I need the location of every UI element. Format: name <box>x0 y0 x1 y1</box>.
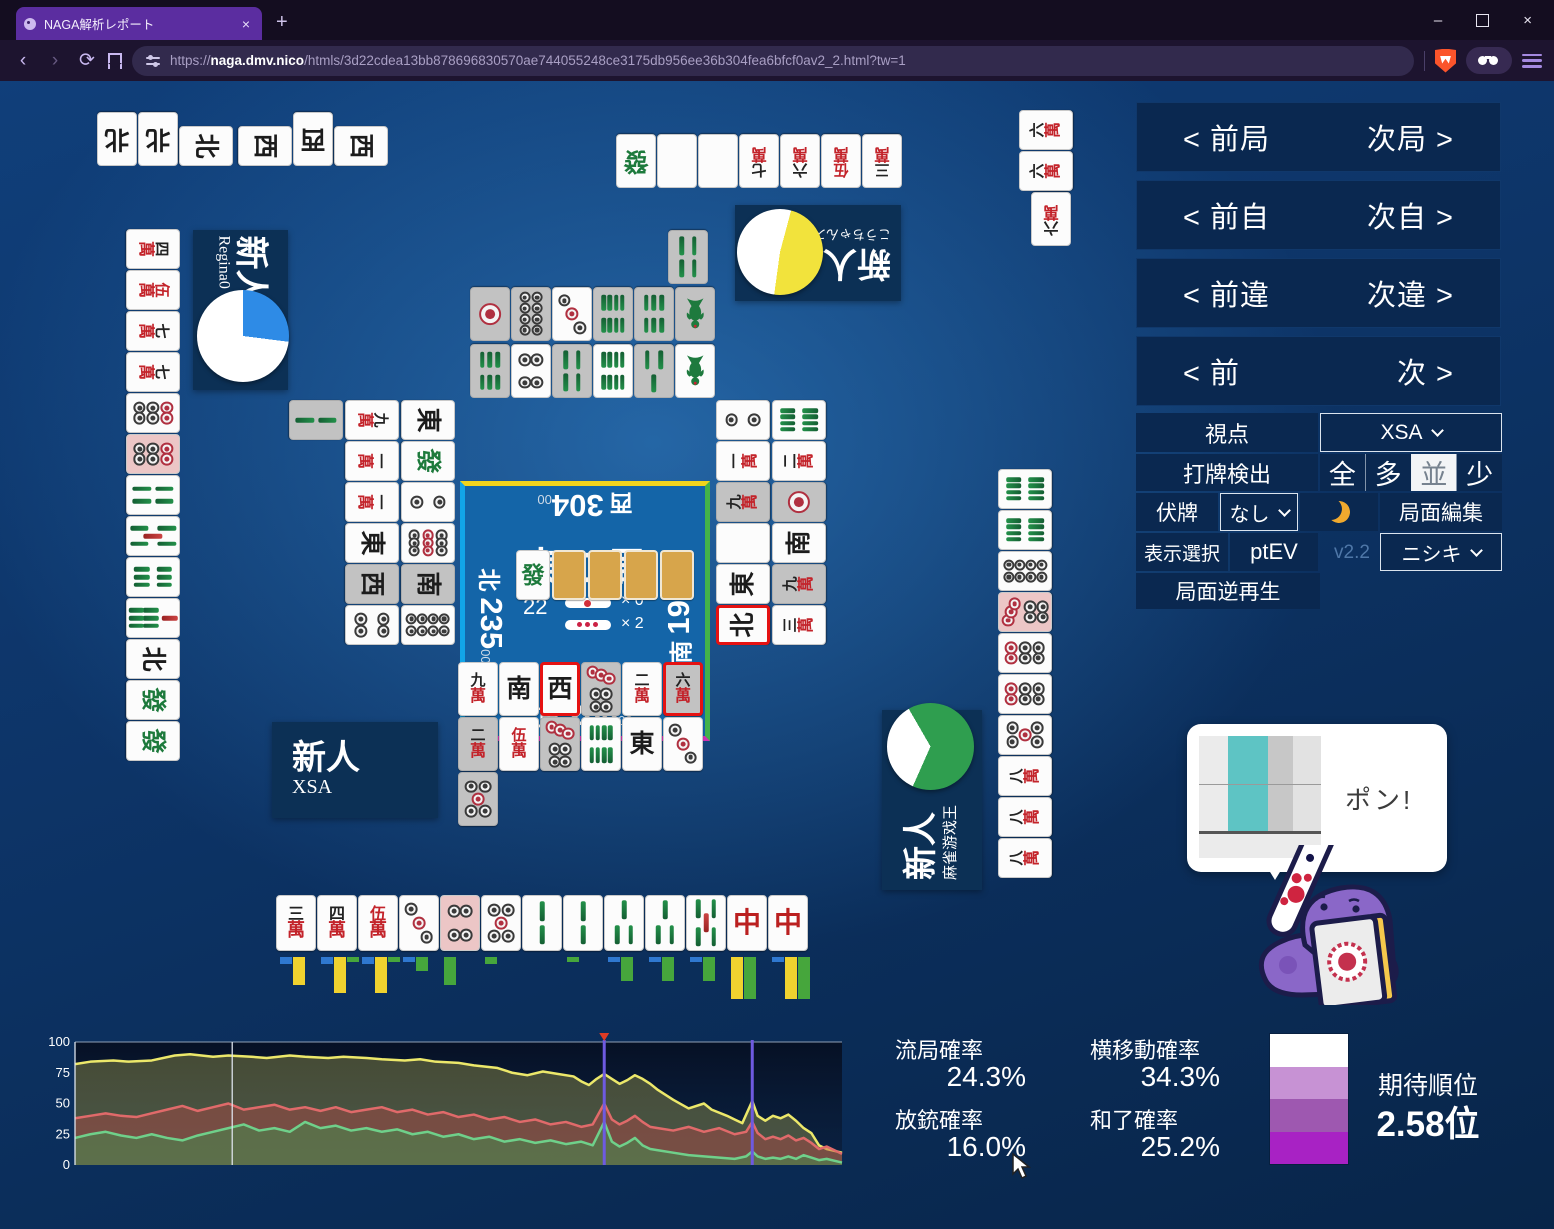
call-probability-panel <box>1199 736 1321 858</box>
dahai-bar <box>362 957 374 964</box>
maximize-button[interactable] <box>1476 14 1489 27</box>
expected-rank-value: 2.58位 <box>1348 1096 1508 1147</box>
stat-dealin-value: 16.0% <box>858 1131 1026 1163</box>
menu-icon[interactable] <box>1522 54 1542 68</box>
dahai-bar <box>280 957 292 964</box>
dahai-bar <box>731 957 743 999</box>
dahai-bar <box>388 957 400 962</box>
dahai-bar <box>772 957 784 962</box>
tab-close-icon[interactable]: × <box>238 16 254 32</box>
dahai-bar <box>416 957 428 971</box>
dahai-bar <box>785 957 797 999</box>
stat-pass-value: 34.3% <box>1052 1061 1220 1093</box>
dahai-bar <box>485 957 497 964</box>
naga-report-page: < 前局 次局 > < 前自 次自 > < 前違 次違 > < 前 次 > 視点… <box>0 81 1554 1229</box>
svg-text:50: 50 <box>56 1096 70 1111</box>
tab-title: NAGA解析レポート <box>44 14 230 33</box>
url-input[interactable]: https://naga.dmv.nico/htmls/3d22cdea13bb… <box>132 46 1414 76</box>
back-icon[interactable]: ‹ <box>12 50 34 72</box>
glasses-icon <box>1478 56 1487 65</box>
dahai-bar <box>690 957 702 962</box>
dahai-bar <box>703 957 715 981</box>
browser-tab[interactable]: NAGA解析レポート × <box>16 7 262 40</box>
browser-window: NAGA解析レポート × + – × ‹ › ⟳ https://naga.dm… <box>0 0 1554 1229</box>
dahai-bar <box>444 957 456 985</box>
bookmark-icon[interactable] <box>108 53 122 69</box>
dahai-bar <box>334 957 346 993</box>
vpn-button[interactable] <box>1466 47 1512 74</box>
dahai-bar <box>744 957 756 999</box>
new-tab-button[interactable]: + <box>276 11 288 34</box>
url-text: https://naga.dmv.nico/htmls/3d22cdea13bb… <box>170 53 906 68</box>
dahai-bar <box>649 957 661 962</box>
dahai-bar <box>567 957 579 962</box>
mouse-cursor <box>1010 1153 1034 1181</box>
minimize-button[interactable]: – <box>1434 13 1442 28</box>
dahai-bar <box>375 957 387 993</box>
svg-text:0: 0 <box>63 1157 70 1170</box>
svg-text:25: 25 <box>56 1126 70 1141</box>
probability-chart: 1007550250 <box>42 1030 852 1170</box>
reload-icon[interactable]: ⟳ <box>76 49 98 72</box>
dahai-bar <box>403 957 415 962</box>
stat-draw-value: 24.3% <box>858 1061 1026 1093</box>
call-label: ポン! <box>1345 780 1413 817</box>
window-controls: – × <box>1412 0 1554 40</box>
forward-icon[interactable]: › <box>44 50 66 72</box>
site-settings-icon[interactable] <box>146 55 160 67</box>
dahai-bar <box>798 957 810 999</box>
naga-favicon <box>24 18 36 30</box>
brave-shield-icon[interactable] <box>1435 49 1456 73</box>
svg-text:100: 100 <box>48 1034 70 1049</box>
dahai-bar <box>662 957 674 981</box>
expected-rank-bar <box>1270 1034 1348 1164</box>
window-close-button[interactable]: × <box>1523 13 1532 28</box>
naga-mascot <box>1248 845 1428 1005</box>
dahai-bar <box>321 957 333 964</box>
browser-tab-bar: NAGA解析レポート × + – × <box>0 0 1554 40</box>
divider <box>1424 51 1425 71</box>
dahai-bar <box>608 957 620 962</box>
dahai-bar <box>347 957 359 962</box>
stat-win-value: 25.2% <box>1052 1131 1220 1163</box>
dahai-bar <box>293 957 305 985</box>
svg-text:75: 75 <box>56 1065 70 1080</box>
dahai-bar <box>621 957 633 981</box>
browser-url-bar: ‹ › ⟳ https://naga.dmv.nico/htmls/3d22cd… <box>0 40 1554 81</box>
